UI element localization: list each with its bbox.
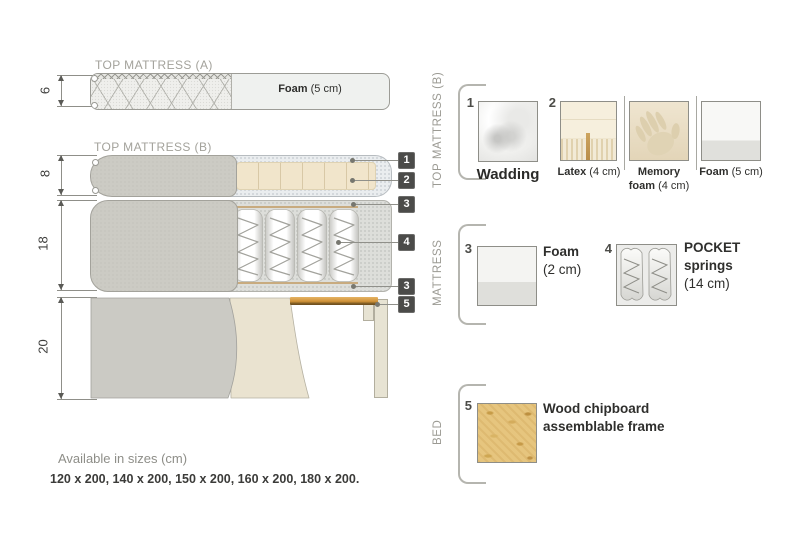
tag-3a: 3	[398, 196, 415, 213]
foam-2cm-swatch	[477, 246, 537, 306]
mattress-infographic: TOP MATTRESS (A) 6 Foam (5 cm) TOP MATTR…	[0, 0, 800, 533]
pocket-springs-cutaway	[233, 209, 359, 282]
dim-line	[61, 297, 62, 399]
leader-dot-3b	[351, 284, 356, 289]
corner-button	[92, 187, 99, 194]
wood-chipboard-label: Wood chipboardassemblable frame	[543, 400, 665, 436]
arrow-down-icon	[58, 393, 64, 399]
dim-tick	[57, 195, 97, 196]
spring-top-line	[232, 206, 358, 208]
foam-2cm-label: Foam(2 cm)	[543, 243, 581, 279]
leader-dot-1	[350, 158, 355, 163]
quilted-section	[91, 74, 232, 109]
zigzag-trim	[91, 74, 231, 79]
legend-divider	[624, 96, 625, 170]
dim-value: 18	[36, 233, 51, 255]
leader-dot-3a	[351, 202, 356, 207]
memory-foam-label: Memoryfoam (4 cm)	[622, 165, 696, 193]
bed-frame-post	[374, 299, 388, 398]
leader-dot-2	[350, 178, 355, 183]
leader-line-5	[377, 304, 398, 305]
legend-item-number: 4	[598, 241, 612, 256]
legend-item-number: 5	[458, 398, 472, 413]
tag-4: 4	[398, 234, 415, 251]
bed-base-shapes	[88, 296, 312, 402]
top-mattress-a-title: TOP MATTRESS (A)	[95, 58, 213, 72]
leader-line-2	[352, 180, 398, 181]
wood-chipboard-swatch	[477, 403, 537, 463]
sizes-list: 120 x 200, 140 x 200, 150 x 200, 160 x 2…	[50, 472, 359, 486]
legend-item-number: 1	[460, 95, 474, 110]
foam-layer-label: Foam (5 cm)	[231, 83, 389, 95]
leader-line-3a	[353, 204, 398, 205]
pocket-springs-icon	[617, 245, 676, 305]
bed-wood-slat	[290, 297, 378, 305]
leader-line-4	[338, 242, 398, 243]
arrow-up-icon	[58, 200, 64, 206]
pocket-springs-label: POCKETsprings(14 cm)	[684, 239, 740, 293]
corner-button	[91, 75, 98, 82]
dim-value: 6	[38, 80, 53, 102]
bed-frame-bracket	[363, 305, 374, 321]
dim-value: 20	[36, 336, 51, 358]
top-mattress-a-body: Foam (5 cm)	[90, 73, 390, 110]
arrow-down-icon	[58, 284, 64, 290]
bed-gray-fabric	[91, 298, 237, 398]
arrow-up-icon	[58, 75, 64, 81]
spring-bottom-line	[232, 282, 358, 284]
arrow-up-icon	[58, 155, 64, 161]
legend-section-bed-label: BED	[432, 404, 444, 460]
wadding-swatch	[478, 101, 538, 162]
tag-5: 5	[398, 296, 415, 313]
latex-blocks	[236, 162, 376, 190]
wadding-label: Wadding	[466, 166, 550, 183]
latex-swatch	[560, 101, 617, 161]
foam-5cm-label: Foam (5 cm)	[690, 165, 772, 179]
latex-notch	[586, 133, 590, 160]
corner-button	[91, 102, 98, 109]
legend-item-number: 3	[458, 241, 472, 256]
arrow-up-icon	[58, 297, 64, 303]
leader-line-3b	[353, 286, 398, 287]
arrow-down-icon	[58, 189, 64, 195]
legend-section-mattress-label: MATTRESS	[432, 228, 444, 318]
corner-button	[92, 159, 99, 166]
pocket-springs-swatch	[616, 244, 677, 306]
dim-line	[61, 200, 62, 290]
leader-dot-4	[336, 240, 341, 245]
legend-section-top-mattress-b-label: TOP MATTRESS (B)	[432, 70, 444, 190]
legend-item-number: 2	[542, 95, 556, 110]
legend-divider	[696, 96, 697, 170]
top-mattress-b-title: TOP MATTRESS (B)	[94, 140, 212, 154]
dim-tick	[57, 290, 97, 291]
latex-texture-line	[561, 119, 616, 120]
arrow-down-icon	[58, 100, 64, 106]
leader-line-1	[352, 160, 398, 161]
foam-5cm-swatch	[701, 101, 761, 161]
leader-dot-5	[375, 302, 380, 307]
mattress-cover	[90, 200, 238, 292]
memory-foam-swatch	[629, 101, 689, 161]
tag-2: 2	[398, 172, 415, 189]
latex-label: Latex (4 cm)	[544, 165, 634, 179]
dim-value: 8	[38, 163, 53, 185]
tag-3b: 3	[398, 278, 415, 295]
tag-1: 1	[398, 152, 415, 169]
bed-beige-fabric	[230, 298, 309, 398]
sizes-title: Available in sizes (cm)	[58, 451, 187, 466]
top-mattress-b-cover	[90, 155, 237, 197]
hand-imprint-icon	[630, 102, 689, 161]
